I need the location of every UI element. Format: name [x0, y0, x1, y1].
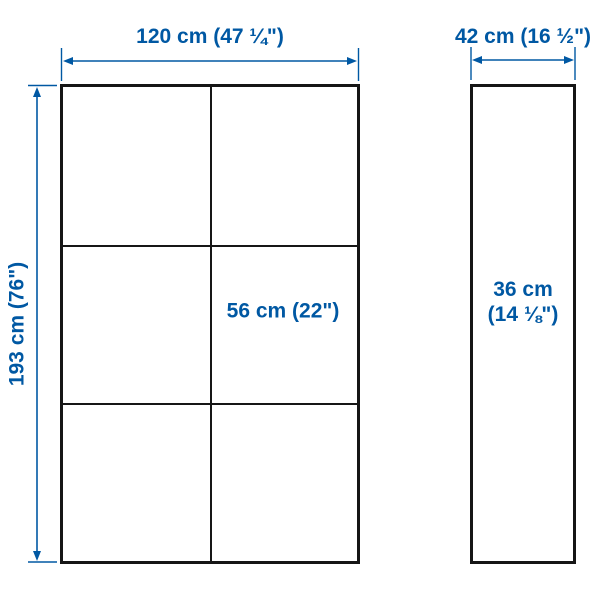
height-dimension-arrow	[28, 86, 57, 563]
compartment-bottom-left	[63, 403, 210, 561]
height-dimension-label: 193 cm (76")	[5, 262, 30, 386]
compartment-top-right	[210, 87, 357, 245]
wardrobe-front-view	[60, 84, 360, 564]
inner-width-dimension-label: 56 cm (22")	[227, 299, 340, 324]
inner-depth-label-line1: 36 cm	[488, 277, 559, 302]
compartment-top-left	[63, 87, 210, 245]
width-dimension-label: 120 cm (47 ¼")	[60, 24, 360, 49]
inner-depth-dimension-label: 36 cm (14 ⅛")	[488, 277, 559, 327]
depth-dimension-arrow	[471, 47, 575, 80]
compartment-bottom-right	[210, 403, 357, 561]
dimension-diagram: 120 cm (47 ¼") 42 cm (16 ½") 193 cm (76"…	[0, 0, 600, 600]
depth-dimension-label: 42 cm (16 ½")	[438, 24, 600, 49]
compartment-middle-left	[63, 245, 210, 403]
compartment-middle-right	[210, 245, 357, 403]
inner-depth-label-line2: (14 ⅛")	[488, 302, 559, 327]
width-dimension-arrow	[62, 48, 359, 81]
